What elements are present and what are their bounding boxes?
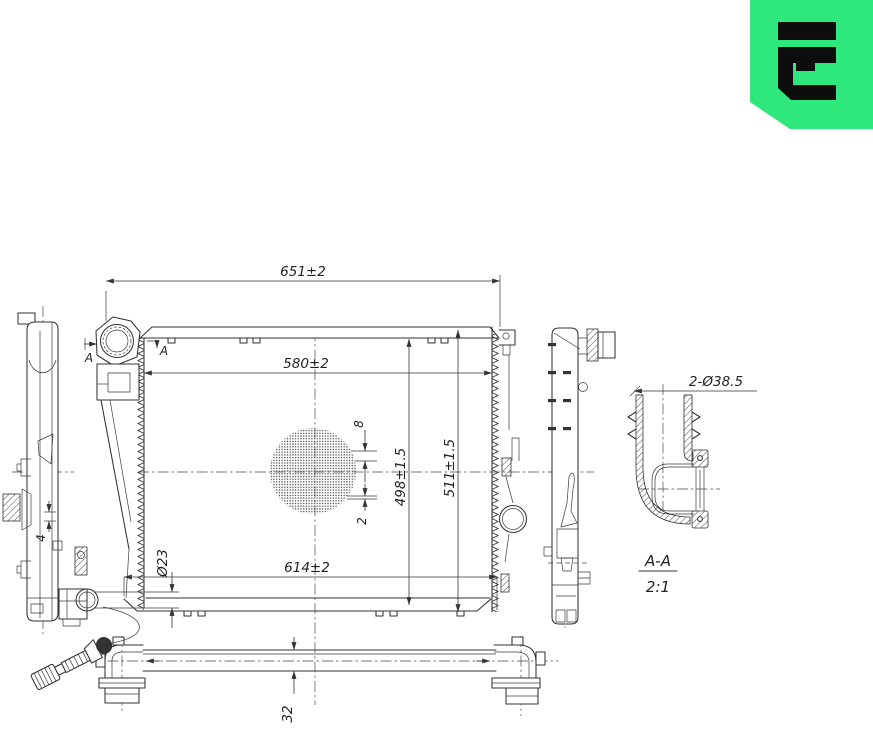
left-side-view: 4 [3, 306, 74, 634]
section-scale: 2:1 [646, 578, 670, 596]
section-marker-a-right: A [159, 344, 168, 358]
front-view: A A [59, 317, 594, 705]
dim-core-width: 580±2 [283, 356, 329, 372]
dim-drain-diameter: Ø23 [155, 549, 171, 578]
right-side-view [544, 328, 615, 628]
right-fin-edge [492, 334, 499, 612]
section-view: 2-Ø38.5 A-A 2:1 [628, 374, 757, 596]
section-marker-a-left: A [84, 351, 93, 365]
brand-logo-glyph [778, 22, 836, 100]
right-edge-fittings [499, 330, 527, 592]
fan-zone [270, 428, 356, 514]
dim-port-diameter: 2-Ø38.5 [689, 374, 743, 390]
dim-fin-thickness: 2 [355, 517, 369, 525]
dim-tube-height: 32 [280, 705, 296, 722]
dim-overall-height: 511±1.5 [442, 439, 458, 498]
dim-bracket-gap: 4 [34, 534, 48, 542]
radiator-technical-drawing: 4 [0, 0, 873, 731]
pipe-wall-right [684, 395, 693, 461]
brand-logo [750, 0, 873, 129]
section-label: A-A [644, 552, 671, 570]
outlet-connector-hatched [587, 329, 598, 361]
dim-fin-pitch: 8 [352, 420, 366, 428]
dim-core-height: 498±1.5 [393, 448, 409, 507]
dim-overall-width: 651±2 [280, 264, 326, 280]
dim-lower-width: 614±2 [284, 560, 330, 576]
filler-neck [96, 317, 140, 400]
bottom-view: 32 [88, 636, 558, 723]
bottom-right-elbow [492, 637, 545, 704]
right-port [500, 506, 527, 533]
side-connector-hatched [3, 494, 20, 521]
